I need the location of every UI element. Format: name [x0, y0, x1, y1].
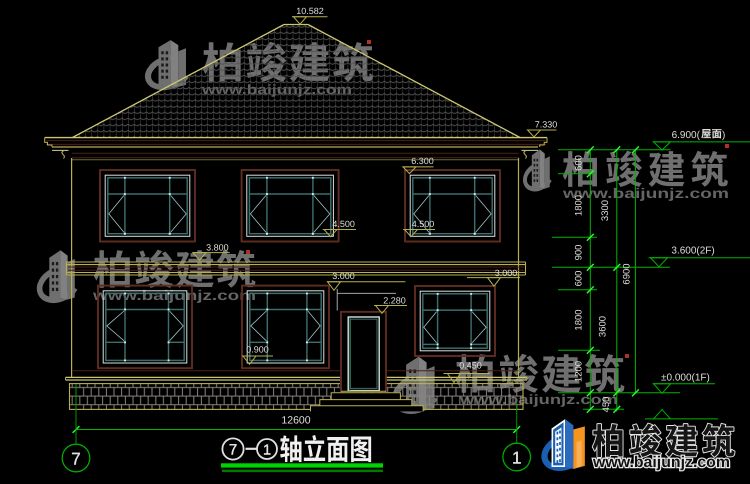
svg-text:4.500: 4.500	[412, 219, 435, 229]
svg-text:www.baijunjz.com: www.baijunjz.com	[592, 454, 730, 471]
svg-text:1800: 1800	[574, 309, 585, 330]
svg-text:12600: 12600	[281, 415, 310, 427]
svg-text:www.baijunjz.com: www.baijunjz.com	[92, 287, 256, 303]
svg-text:1200: 1200	[574, 361, 585, 382]
svg-text:0.900: 0.900	[246, 345, 269, 355]
svg-text:3300: 3300	[600, 200, 611, 221]
svg-text:6.300: 6.300	[411, 156, 434, 166]
svg-text:6.900(: 6.900(	[672, 130, 701, 141]
svg-text:3.600(2F): 3.600(2F)	[671, 245, 714, 256]
svg-text:3.000: 3.000	[495, 268, 518, 278]
svg-text:600: 600	[574, 271, 585, 287]
svg-text:7: 7	[71, 450, 80, 469]
svg-text:4.500: 4.500	[332, 219, 355, 229]
svg-text:900: 900	[574, 245, 585, 261]
svg-text:1800: 1800	[574, 195, 585, 216]
svg-text:2.280: 2.280	[383, 295, 406, 305]
svg-text:www.baijunjz.com: www.baijunjz.com	[562, 185, 729, 201]
svg-text:±0.000(1F): ±0.000(1F)	[661, 372, 710, 383]
svg-text:600: 600	[574, 155, 585, 171]
svg-text:): )	[722, 130, 725, 141]
svg-text:3.800: 3.800	[206, 243, 229, 253]
svg-text:450: 450	[601, 397, 612, 413]
svg-text:1: 1	[263, 442, 271, 458]
svg-text:7.330: 7.330	[535, 119, 558, 129]
svg-text:10.582: 10.582	[296, 6, 324, 16]
svg-text:0.450: 0.450	[459, 361, 482, 371]
svg-text:3600: 3600	[598, 316, 609, 337]
svg-text:3.000: 3.000	[332, 271, 355, 281]
svg-text:1: 1	[512, 449, 521, 468]
svg-text:6900: 6900	[622, 263, 633, 284]
svg-text:7: 7	[229, 442, 237, 459]
